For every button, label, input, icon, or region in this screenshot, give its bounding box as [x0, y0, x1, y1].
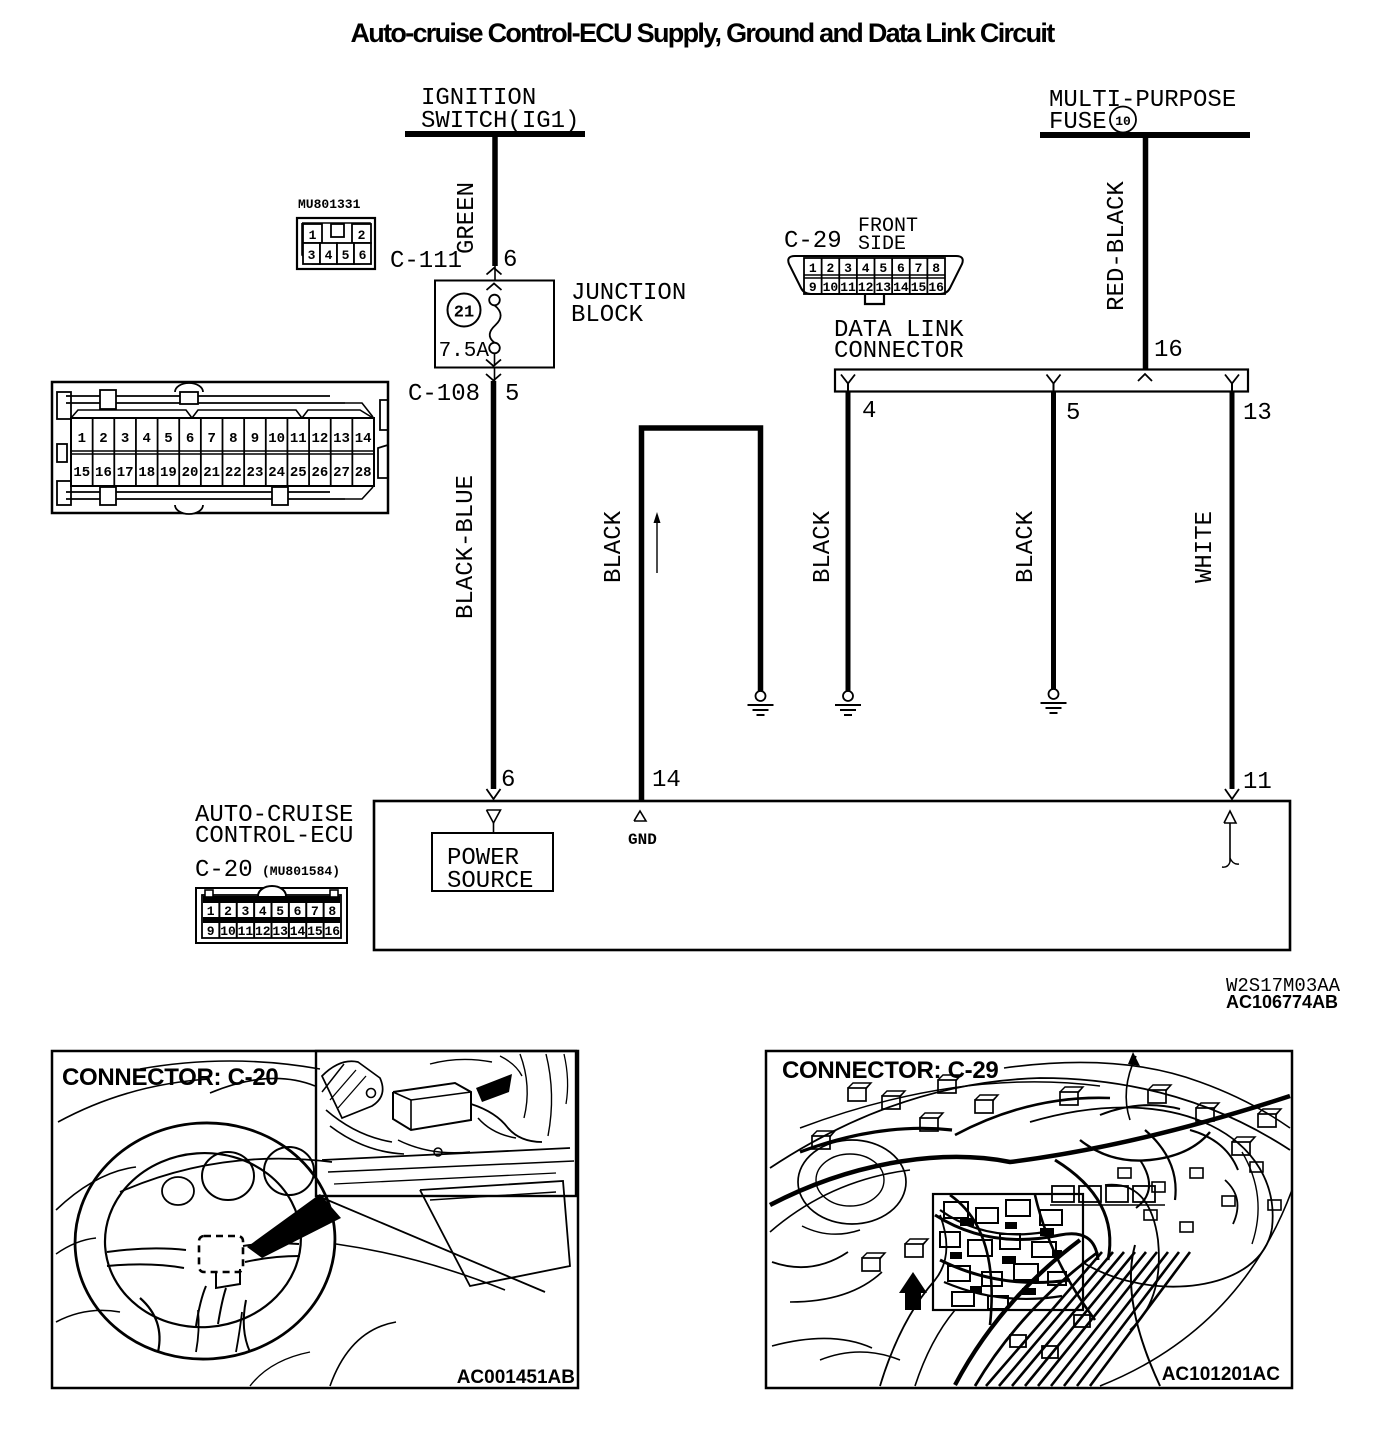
- svg-text:10: 10: [220, 924, 236, 939]
- svg-text:3: 3: [308, 248, 316, 263]
- svg-text:6: 6: [501, 767, 515, 794]
- svg-text:16: 16: [325, 924, 341, 939]
- svg-text:11: 11: [290, 431, 307, 447]
- svg-text:10: 10: [268, 431, 285, 447]
- svg-text:8: 8: [328, 904, 336, 919]
- svg-text:3: 3: [242, 904, 250, 919]
- svg-text:1: 1: [309, 228, 317, 243]
- svg-text:7: 7: [915, 261, 923, 276]
- svg-text:BLOCK: BLOCK: [571, 302, 644, 329]
- svg-text:WHITE: WHITE: [1192, 511, 1219, 583]
- svg-text:13: 13: [876, 280, 892, 295]
- svg-text:7.5A: 7.5A: [439, 340, 490, 363]
- svg-text:11: 11: [840, 280, 856, 295]
- svg-text:10: 10: [823, 280, 839, 295]
- svg-text:1: 1: [207, 904, 215, 919]
- svg-text:SWITCH(IG1): SWITCH(IG1): [421, 108, 579, 135]
- svg-text:1: 1: [809, 261, 817, 276]
- svg-text:16: 16: [1154, 337, 1183, 364]
- svg-text:6: 6: [503, 247, 517, 274]
- svg-text:14: 14: [290, 924, 306, 939]
- svg-text:23: 23: [247, 465, 264, 481]
- svg-text:13: 13: [1243, 400, 1272, 427]
- svg-text:16: 16: [95, 465, 112, 481]
- svg-text:SIDE: SIDE: [858, 233, 906, 256]
- svg-text:CONNECTOR: C-29: CONNECTOR: C-29: [782, 1057, 998, 1084]
- svg-text:9: 9: [207, 924, 215, 939]
- svg-text:BLACK: BLACK: [810, 510, 837, 583]
- svg-text:(MU801584): (MU801584): [262, 864, 340, 879]
- svg-text:BLACK: BLACK: [601, 510, 628, 583]
- svg-text:12: 12: [858, 280, 874, 295]
- svg-text:11: 11: [238, 924, 254, 939]
- svg-text:24: 24: [268, 465, 285, 481]
- svg-text:4: 4: [862, 398, 876, 425]
- svg-text:4: 4: [143, 431, 151, 447]
- svg-text:1: 1: [78, 431, 86, 447]
- svg-text:AC001451AB: AC001451AB: [457, 1367, 575, 1388]
- svg-text:5: 5: [879, 261, 887, 276]
- svg-text:14: 14: [893, 280, 909, 295]
- svg-text:AC101201AC: AC101201AC: [1162, 1364, 1281, 1385]
- svg-text:3: 3: [844, 261, 852, 276]
- svg-text:C-111: C-111: [390, 248, 462, 275]
- svg-text:17: 17: [117, 465, 134, 481]
- svg-text:16: 16: [928, 280, 944, 295]
- svg-text:28: 28: [355, 465, 372, 481]
- svg-text:C-20: C-20: [195, 857, 253, 884]
- svg-text:26: 26: [311, 465, 328, 481]
- svg-text:25: 25: [290, 465, 307, 481]
- svg-text:27: 27: [333, 465, 350, 481]
- svg-text:CONNECTOR: C-20: CONNECTOR: C-20: [62, 1064, 278, 1091]
- svg-text:CONTROL-ECU: CONTROL-ECU: [195, 823, 353, 850]
- svg-text:GREEN: GREEN: [454, 182, 481, 254]
- svg-text:Auto-cruise Control-ECU Supply: Auto-cruise Control-ECU Supply, Ground a…: [350, 18, 1055, 48]
- svg-text:13: 13: [272, 924, 288, 939]
- svg-text:15: 15: [911, 280, 927, 295]
- svg-text:14: 14: [652, 767, 681, 794]
- svg-text:4: 4: [259, 904, 267, 919]
- svg-text:8: 8: [932, 261, 940, 276]
- svg-text:2: 2: [99, 431, 107, 447]
- svg-text:6: 6: [186, 431, 194, 447]
- svg-text:2: 2: [224, 904, 232, 919]
- svg-text:GND: GND: [628, 831, 657, 849]
- svg-text:6: 6: [294, 904, 302, 919]
- svg-text:13: 13: [333, 431, 350, 447]
- svg-text:MU801331: MU801331: [298, 197, 361, 212]
- svg-text:4: 4: [325, 248, 333, 263]
- svg-text:20: 20: [182, 465, 199, 481]
- svg-text:SOURCE: SOURCE: [447, 868, 533, 895]
- svg-text:4: 4: [862, 261, 870, 276]
- svg-text:5: 5: [164, 431, 172, 447]
- svg-text:6: 6: [359, 248, 367, 263]
- svg-text:21: 21: [454, 304, 474, 323]
- svg-text:C-108: C-108: [408, 381, 480, 408]
- svg-text:7: 7: [311, 904, 319, 919]
- svg-text:15: 15: [73, 465, 90, 481]
- svg-text:RED-BLACK: RED-BLACK: [1104, 181, 1131, 311]
- svg-text:CONNECTOR: CONNECTOR: [834, 338, 964, 365]
- svg-text:5: 5: [276, 904, 284, 919]
- svg-text:15: 15: [307, 924, 323, 939]
- svg-text:5: 5: [505, 381, 519, 408]
- svg-text:12: 12: [311, 431, 328, 447]
- svg-text:BLACK: BLACK: [1013, 510, 1040, 583]
- svg-text:19: 19: [160, 465, 177, 481]
- svg-text:2: 2: [358, 228, 366, 243]
- svg-text:21: 21: [203, 465, 220, 481]
- svg-text:5: 5: [1066, 400, 1080, 427]
- svg-text:FUSE: FUSE: [1049, 109, 1107, 136]
- svg-text:3: 3: [121, 431, 129, 447]
- svg-text:18: 18: [138, 465, 155, 481]
- svg-text:2: 2: [827, 261, 835, 276]
- svg-text:10: 10: [1115, 114, 1131, 129]
- svg-text:9: 9: [251, 431, 259, 447]
- svg-text:AC106774AB: AC106774AB: [1226, 992, 1338, 1012]
- svg-text:9: 9: [809, 280, 817, 295]
- svg-text:8: 8: [229, 431, 237, 447]
- svg-text:22: 22: [225, 465, 242, 481]
- svg-text:12: 12: [255, 924, 271, 939]
- svg-text:14: 14: [355, 431, 372, 447]
- svg-text:C-29: C-29: [784, 228, 842, 255]
- svg-text:BLACK-BLUE: BLACK-BLUE: [453, 475, 480, 619]
- svg-text:7: 7: [207, 431, 215, 447]
- svg-text:11: 11: [1243, 769, 1272, 796]
- svg-text:6: 6: [897, 261, 905, 276]
- svg-text:5: 5: [342, 248, 350, 263]
